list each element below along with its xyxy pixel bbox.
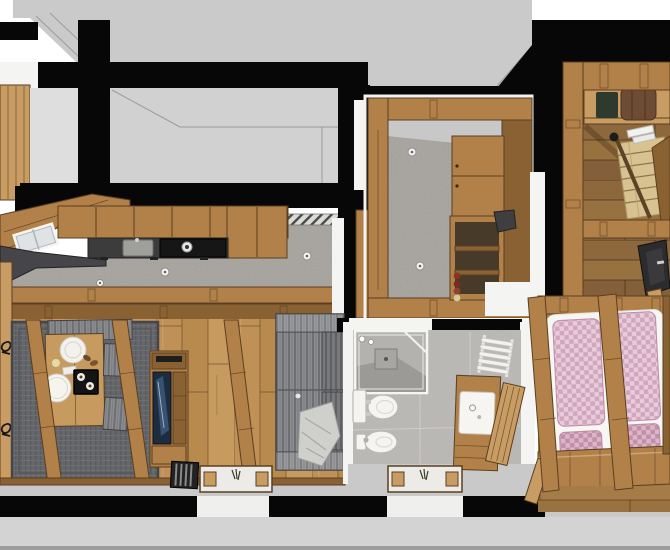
ground-band [0, 517, 670, 546]
sofa [276, 314, 344, 470]
floor-vent [170, 461, 198, 488]
mattress-left [553, 318, 605, 426]
cup [52, 359, 61, 368]
sideboard [584, 86, 670, 124]
shower [355, 331, 427, 393]
bidet [356, 431, 397, 453]
facade-wall [0, 496, 545, 517]
cooktop [160, 239, 226, 257]
wall-white-left [0, 62, 38, 88]
wood-siding [0, 85, 30, 200]
kitchen-counter [88, 238, 228, 260]
shower-control-1 [359, 336, 365, 342]
pantry-door-opening [485, 282, 532, 316]
pantry-wall-cabinet [452, 136, 504, 216]
shower-control-2 [369, 340, 374, 345]
wall-column-left [78, 20, 110, 205]
left-wall-sliver [0, 262, 12, 483]
kitchen [0, 183, 345, 320]
leather-cushion [621, 88, 656, 120]
vanity-basin [459, 391, 495, 434]
newel-knob [610, 133, 619, 142]
sofa-back-cushion-1 [322, 332, 344, 390]
pantry-dark-fixture [494, 210, 516, 232]
floorplan-render [0, 0, 670, 550]
pantry [332, 85, 532, 322]
doormat-left [200, 466, 272, 492]
kitchen-sink [123, 240, 153, 256]
facade-window-right [387, 496, 463, 517]
ground-edge [0, 546, 670, 550]
plate [60, 337, 86, 363]
floorplan-canvas [0, 0, 670, 550]
wall-top-left [0, 22, 38, 40]
faucet [135, 238, 139, 242]
left-facade-strip [0, 85, 78, 200]
tv-cabinet [150, 351, 188, 467]
bedroom [524, 294, 670, 512]
coffee-tray [74, 370, 98, 394]
bedroom-right-post [663, 296, 670, 454]
sofa-armrest-top [276, 314, 344, 332]
door-frame-white-2 [332, 218, 344, 318]
facade-window-left [197, 496, 269, 517]
doormat-right [388, 466, 462, 492]
seat-pad [596, 92, 618, 118]
sofa-button [295, 393, 301, 399]
